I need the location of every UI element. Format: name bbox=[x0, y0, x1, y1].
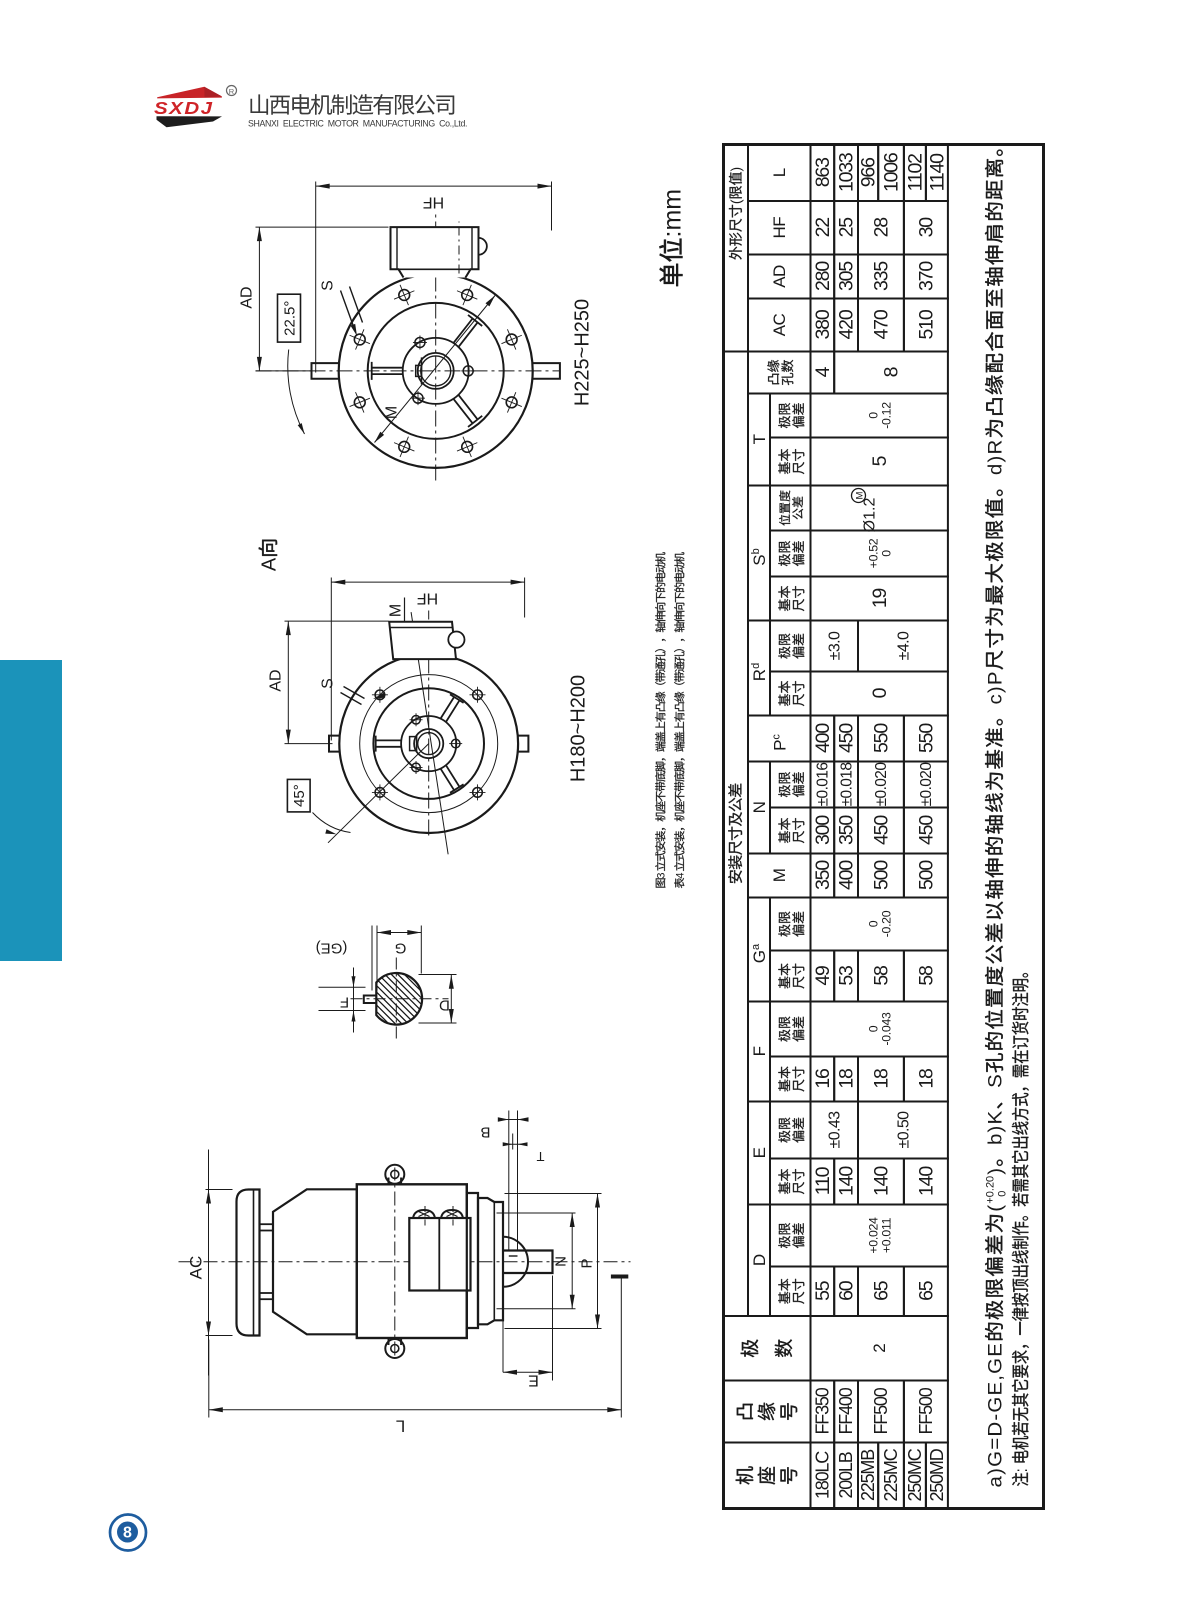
svg-text:250MC: 250MC bbox=[905, 1448, 925, 1501]
svg-text:60: 60 bbox=[835, 1280, 857, 1301]
svg-text:400: 400 bbox=[835, 859, 857, 889]
svg-text:L: L bbox=[770, 168, 789, 177]
svg-text:AC: AC bbox=[186, 1255, 205, 1279]
svg-text:53: 53 bbox=[835, 966, 857, 986]
svg-text:25: 25 bbox=[835, 216, 857, 237]
svg-text:-0.043: -0.043 bbox=[879, 1012, 893, 1046]
svg-text:450: 450 bbox=[915, 814, 937, 844]
svg-text:1033: 1033 bbox=[835, 153, 857, 192]
svg-text:22.5°: 22.5° bbox=[281, 300, 298, 335]
svg-text:(: ( bbox=[984, 1203, 1005, 1211]
svg-text:30: 30 bbox=[915, 216, 937, 237]
svg-text:+0.011: +0.011 bbox=[879, 1217, 893, 1253]
svg-text:±0.020: ±0.020 bbox=[918, 761, 935, 806]
svg-text:Ø1.2: Ø1.2 bbox=[861, 497, 878, 532]
svg-text:E: E bbox=[749, 1147, 768, 1158]
svg-text:55: 55 bbox=[811, 1280, 833, 1301]
svg-text:966: 966 bbox=[857, 157, 879, 186]
svg-text:0: 0 bbox=[866, 411, 880, 418]
svg-text:450: 450 bbox=[870, 814, 892, 844]
svg-text:+0.024: +0.024 bbox=[866, 1216, 880, 1253]
svg-text:HF: HF bbox=[416, 589, 438, 606]
svg-text:450: 450 bbox=[835, 722, 857, 752]
svg-text:M: M bbox=[854, 491, 865, 499]
svg-text:+0.20: +0.20 bbox=[984, 1175, 996, 1203]
svg-text:370: 370 bbox=[915, 260, 937, 290]
svg-text:225MC: 225MC bbox=[881, 1448, 901, 1501]
svg-text:N: N bbox=[749, 801, 768, 813]
svg-text:0: 0 bbox=[866, 1025, 880, 1032]
svg-text:22: 22 bbox=[811, 217, 833, 237]
svg-text:D: D bbox=[749, 1254, 768, 1266]
svg-text:49: 49 bbox=[811, 966, 833, 986]
svg-text:FF500: FF500 bbox=[916, 1387, 936, 1434]
svg-text:1140: 1140 bbox=[926, 152, 948, 190]
svg-text:28: 28 bbox=[870, 217, 892, 237]
svg-text:110: 110 bbox=[811, 1166, 833, 1195]
svg-text:3: 3 bbox=[655, 872, 667, 878]
svg-text:2: 2 bbox=[869, 1343, 888, 1352]
svg-text:±0.020: ±0.020 bbox=[873, 761, 890, 806]
svg-text:18: 18 bbox=[915, 1069, 937, 1089]
svg-text:R: R bbox=[229, 87, 235, 96]
svg-text:±0.018: ±0.018 bbox=[838, 762, 855, 806]
svg-text:65: 65 bbox=[870, 1280, 892, 1301]
svg-text:5: 5 bbox=[868, 455, 890, 466]
svg-text:FF500: FF500 bbox=[871, 1387, 891, 1434]
svg-text:Rd: Rd bbox=[750, 662, 769, 680]
svg-text:±0.43: ±0.43 bbox=[826, 1110, 843, 1148]
svg-text:d)R: d)R bbox=[984, 438, 1005, 475]
svg-text:863: 863 bbox=[811, 157, 833, 186]
svg-text:+0.52: +0.52 bbox=[866, 538, 880, 568]
svg-text:A: A bbox=[258, 557, 280, 571]
svg-text:Pc: Pc bbox=[770, 733, 789, 750]
svg-text:AD: AD bbox=[770, 264, 789, 287]
svg-text:AC: AC bbox=[770, 313, 789, 336]
svg-text:280: 280 bbox=[811, 260, 833, 290]
svg-text:±4.0: ±4.0 bbox=[895, 630, 912, 659]
svg-text:G: G bbox=[394, 939, 406, 956]
svg-text:-0.20: -0.20 bbox=[879, 910, 893, 937]
svg-text:250MD: 250MD bbox=[927, 1448, 947, 1501]
svg-text:c)P: c)P bbox=[984, 670, 1005, 704]
svg-text:350: 350 bbox=[835, 814, 857, 844]
svg-text::: : bbox=[1011, 1468, 1031, 1472]
svg-text:M: M bbox=[770, 868, 789, 882]
svg-text:420: 420 bbox=[835, 309, 857, 339]
svg-text:470: 470 bbox=[870, 309, 892, 339]
svg-text:a)G=D-GE,GE: a)G=D-GE,GE bbox=[984, 1341, 1005, 1487]
svg-text:S: S bbox=[319, 280, 336, 291]
svg-text:L: L bbox=[395, 1416, 404, 1435]
svg-text:350: 350 bbox=[811, 859, 833, 889]
svg-text:300: 300 bbox=[811, 814, 833, 844]
svg-text:M: M bbox=[383, 405, 400, 418]
svg-text:F: F bbox=[339, 993, 348, 1010]
svg-text:S: S bbox=[319, 678, 336, 689]
svg-text:180LC: 180LC bbox=[812, 1450, 832, 1498]
svg-text:B: B bbox=[480, 1123, 490, 1140]
svg-text:T: T bbox=[536, 1148, 544, 1163]
svg-text:8: 8 bbox=[880, 367, 902, 377]
svg-text:M: M bbox=[387, 603, 404, 616]
svg-text:380: 380 bbox=[811, 309, 833, 339]
svg-text:8: 8 bbox=[123, 1525, 132, 1542]
svg-text:65: 65 bbox=[915, 1280, 937, 1301]
svg-text:FF400: FF400 bbox=[836, 1387, 856, 1434]
svg-text:): ) bbox=[727, 166, 743, 171]
svg-text:1006: 1006 bbox=[880, 153, 902, 192]
svg-text:500: 500 bbox=[915, 859, 937, 889]
svg-text:0: 0 bbox=[879, 549, 893, 556]
svg-text:16: 16 bbox=[811, 1069, 833, 1089]
svg-text:±0.016: ±0.016 bbox=[814, 762, 831, 806]
svg-text:SHANXI ELECTRIC MOTOR MANUF: SHANXI ELECTRIC MOTOR MANUFACTURING Co.,… bbox=[248, 119, 467, 129]
svg-text:0: 0 bbox=[868, 687, 890, 698]
svg-text:0: 0 bbox=[996, 1190, 1008, 1196]
svg-text:335: 335 bbox=[870, 260, 892, 290]
svg-text:Sb: Sb bbox=[750, 548, 769, 565]
svg-text:510: 510 bbox=[915, 309, 937, 339]
svg-text:305: 305 bbox=[835, 260, 857, 290]
svg-text:1102: 1102 bbox=[904, 153, 926, 190]
svg-text:0: 0 bbox=[866, 920, 880, 927]
svg-text:200LB: 200LB bbox=[836, 1451, 856, 1498]
svg-text:±3.0: ±3.0 bbox=[826, 630, 843, 659]
svg-text:HF: HF bbox=[422, 193, 444, 210]
svg-text:AD: AD bbox=[267, 669, 284, 691]
svg-text:AD: AD bbox=[238, 286, 255, 308]
svg-text:P: P bbox=[578, 1258, 595, 1268]
svg-text:58: 58 bbox=[870, 966, 892, 986]
svg-text:): ) bbox=[984, 1166, 1005, 1174]
svg-text:D: D bbox=[438, 996, 449, 1013]
svg-text:45°: 45° bbox=[291, 784, 308, 807]
svg-text:(GE): (GE) bbox=[315, 939, 347, 956]
svg-text:±0.50: ±0.50 bbox=[895, 1110, 912, 1148]
svg-text:N: N bbox=[552, 1256, 569, 1267]
svg-text:4: 4 bbox=[811, 366, 833, 377]
svg-text:58: 58 bbox=[915, 966, 937, 986]
svg-text:HF: HF bbox=[770, 216, 789, 238]
svg-text:140: 140 bbox=[835, 1165, 857, 1195]
svg-text:H180~H200: H180~H200 bbox=[567, 674, 589, 781]
svg-text:b)K: b)K bbox=[984, 1109, 1005, 1144]
svg-text:550: 550 bbox=[915, 722, 937, 752]
svg-text:140: 140 bbox=[915, 1165, 937, 1195]
svg-text:(: ( bbox=[727, 199, 743, 204]
svg-text:19: 19 bbox=[868, 588, 890, 608]
svg-text:S: S bbox=[984, 1073, 1005, 1088]
svg-text:T: T bbox=[749, 434, 768, 444]
svg-text::mm: :mm bbox=[658, 188, 686, 237]
svg-text:SXDJ: SXDJ bbox=[154, 99, 214, 118]
svg-text:E: E bbox=[528, 1371, 539, 1388]
svg-text:H225~H250: H225~H250 bbox=[571, 298, 593, 405]
svg-text:FF350: FF350 bbox=[812, 1387, 832, 1434]
svg-text:4: 4 bbox=[674, 872, 686, 878]
svg-text:F: F bbox=[749, 1046, 768, 1056]
svg-text:550: 550 bbox=[870, 722, 892, 752]
svg-text:140: 140 bbox=[870, 1165, 892, 1195]
svg-text:500: 500 bbox=[870, 859, 892, 889]
svg-text:Ga: Ga bbox=[750, 942, 769, 962]
svg-text:-0.12: -0.12 bbox=[879, 401, 893, 428]
svg-text:225MB: 225MB bbox=[858, 1448, 878, 1500]
svg-text:400: 400 bbox=[811, 722, 833, 752]
svg-text:18: 18 bbox=[835, 1069, 857, 1089]
svg-text:18: 18 bbox=[870, 1069, 892, 1089]
